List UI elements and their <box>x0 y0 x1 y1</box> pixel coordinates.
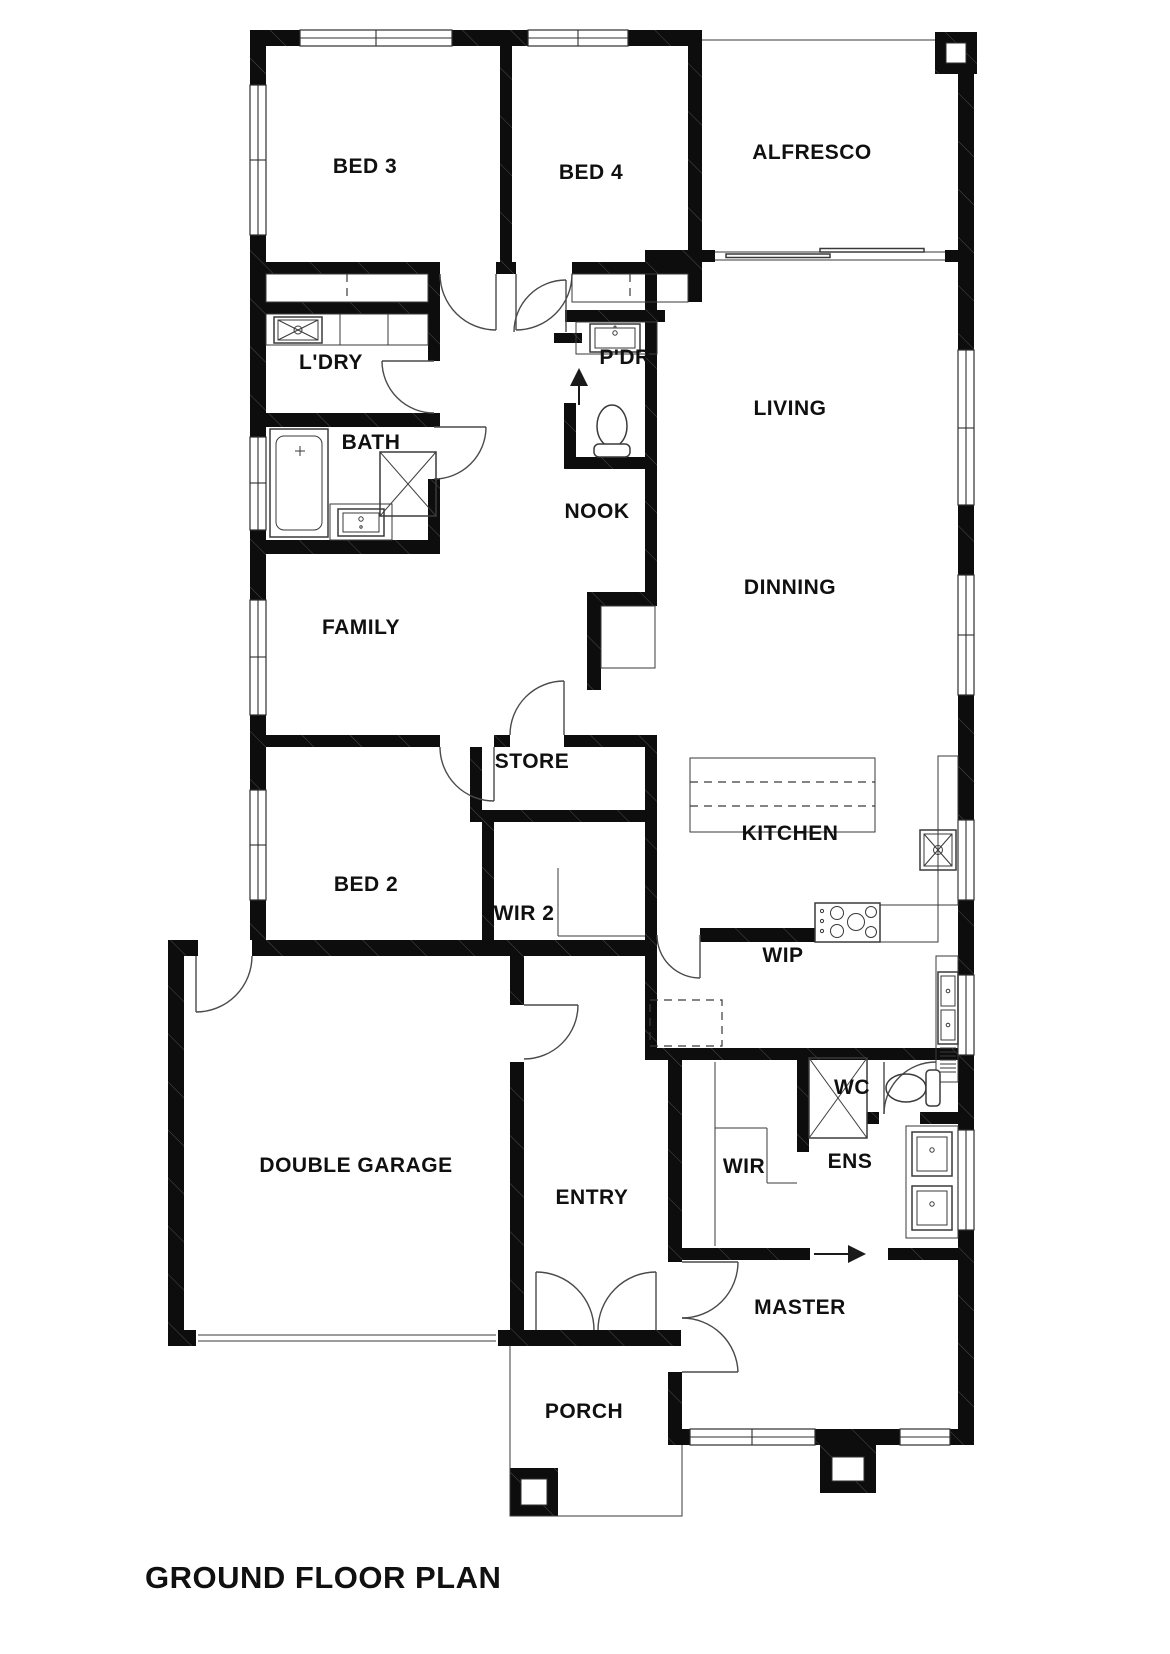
room-label-wir2: WIR 2 <box>494 902 555 925</box>
porch-pillar <box>510 1468 558 1516</box>
ens-vanity-icon <box>906 1126 958 1238</box>
robe-bed3 <box>266 274 428 302</box>
bathtub-icon <box>270 429 328 537</box>
room-label-entry: ENTRY <box>556 1186 629 1209</box>
room-label-master: MASTER <box>754 1296 846 1319</box>
room-label-garage: DOUBLE GARAGE <box>259 1154 452 1177</box>
room-label-porch: PORCH <box>545 1400 623 1423</box>
room-label-bed3: BED 3 <box>333 155 397 178</box>
alfresco-pillar <box>935 32 977 74</box>
door-garage-entry <box>524 1005 578 1059</box>
window-family-left <box>250 600 266 715</box>
room-label-store: STORE <box>495 750 569 773</box>
room-label-bed4: BED 4 <box>559 161 623 184</box>
room-label-nook: NOOK <box>565 500 630 523</box>
door-garage-family <box>196 956 252 1012</box>
arrow-up-icon <box>570 368 588 405</box>
toilet-wc-icon <box>886 1070 940 1106</box>
shower-bath-icon <box>380 452 436 516</box>
window-dining-right <box>958 575 974 695</box>
laundry-bench-sink-icon <box>266 314 428 345</box>
fridge-space-dashed <box>650 1000 722 1046</box>
window-master-bottom-2 <box>900 1429 950 1445</box>
sliding-door-alfresco <box>715 249 945 261</box>
wir-rail <box>715 1062 797 1246</box>
window-living-right <box>958 350 974 505</box>
door-bed3 <box>440 274 496 330</box>
room-label-wir: WIR <box>723 1155 765 1178</box>
door-store <box>510 681 564 735</box>
door-bed4 <box>516 274 572 330</box>
master-pillar <box>820 1445 876 1493</box>
room-label-family: FAMILY <box>322 616 400 639</box>
interior-walls <box>250 30 974 1445</box>
window-wip-right <box>958 975 974 1055</box>
wir2-rail <box>558 868 645 936</box>
room-label-pdr: P'DR <box>599 346 650 369</box>
arrow-right-icon <box>814 1245 866 1263</box>
bath-vanity-icon <box>330 504 392 540</box>
room-label-bed2: BED 2 <box>334 873 398 896</box>
window-kitchen-right <box>958 820 974 900</box>
door-bath <box>434 427 486 479</box>
floor-plan-page: BED 3 BED 4 ALFRESCO L'DRY P'DR LIVING B… <box>0 0 1170 1654</box>
room-label-kitchen: KITCHEN <box>742 822 839 845</box>
door-porch-double <box>536 1272 656 1330</box>
floor-plan-drawing: BED 3 BED 4 ALFRESCO L'DRY P'DR LIVING B… <box>0 0 1170 1654</box>
robe-bed4 <box>572 274 688 302</box>
room-label-wip: WIP <box>762 944 803 967</box>
nook-pier <box>601 606 655 668</box>
cooktop-icon <box>815 903 880 942</box>
room-label-ens: ENS <box>828 1150 873 1173</box>
garage-door <box>196 1330 498 1346</box>
room-label-bath: BATH <box>342 431 401 454</box>
door-ldry <box>382 361 434 413</box>
room-label-wc: WC <box>834 1076 870 1099</box>
door-master-double <box>682 1262 738 1372</box>
kitchen-island <box>690 758 875 832</box>
room-label-ldry: L'DRY <box>299 351 363 374</box>
room-label-alfresco: ALFRESCO <box>752 141 872 164</box>
wip-sink-icon <box>936 956 958 1082</box>
window-bed3-left <box>250 85 266 235</box>
window-bed2-left <box>250 790 266 900</box>
window-ens-right <box>958 1130 974 1230</box>
window-bed4-top <box>528 30 628 46</box>
toilet-pdr-icon <box>594 405 630 457</box>
window-bath-left <box>250 437 266 530</box>
window-master-bottom-1 <box>690 1429 815 1445</box>
room-label-dinning: DINNING <box>744 576 836 599</box>
room-label-living: LIVING <box>753 397 826 420</box>
window-bed3-top <box>300 30 452 46</box>
plan-title: GROUND FLOOR PLAN <box>145 1560 501 1595</box>
door-bed2 <box>440 747 494 801</box>
door-kitchen-wip <box>657 935 700 978</box>
